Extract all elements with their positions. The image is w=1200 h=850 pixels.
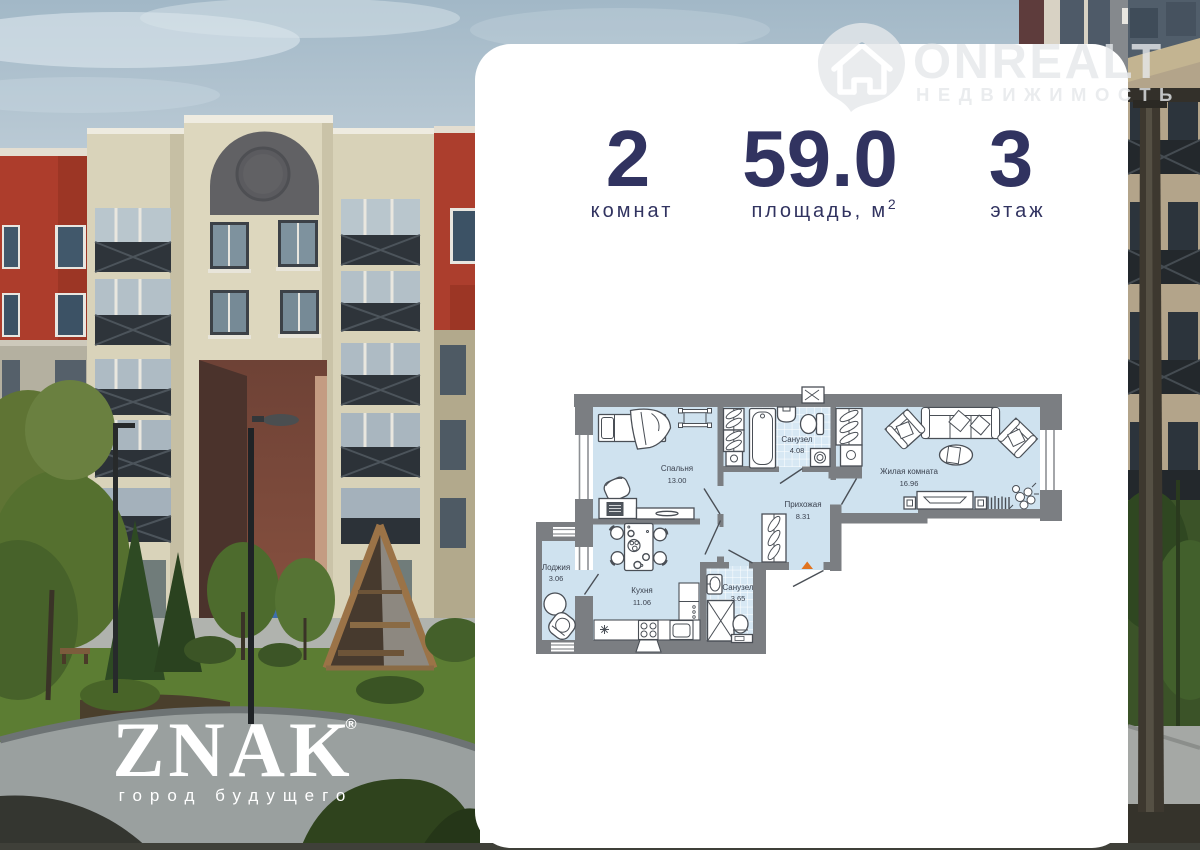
svg-text:Прихожая: Прихожая: [784, 500, 821, 509]
svg-text:город будущего: город будущего: [119, 786, 354, 805]
svg-text:®: ®: [345, 716, 356, 733]
svg-text:3.65: 3.65: [731, 594, 746, 603]
svg-text:площадь, м2: площадь, м2: [752, 196, 899, 222]
svg-text:Спальня: Спальня: [661, 464, 693, 473]
svg-text:59.0: 59.0: [742, 114, 898, 203]
svg-text:Санузел: Санузел: [722, 583, 753, 592]
svg-text:ZNAK: ZNAK: [112, 706, 353, 793]
svg-text:этаж: этаж: [990, 200, 1045, 222]
svg-text:13.00: 13.00: [668, 476, 687, 485]
svg-text:11.06: 11.06: [633, 598, 651, 607]
svg-text:2: 2: [606, 114, 651, 203]
svg-text:16.96: 16.96: [900, 479, 919, 488]
svg-text:4.08: 4.08: [790, 446, 805, 455]
svg-text:8.31: 8.31: [796, 512, 811, 521]
svg-text:комнат: комнат: [591, 200, 674, 222]
svg-text:Кухня: Кухня: [631, 586, 652, 595]
svg-text:Лоджия: Лоджия: [542, 563, 570, 572]
svg-text:3.06: 3.06: [549, 574, 564, 583]
svg-text:НЕДВИЖИМОСТЬ: НЕДВИЖИМОСТЬ: [916, 84, 1181, 105]
svg-text:Жилая комната: Жилая комната: [880, 467, 938, 476]
svg-text:Санузел: Санузел: [781, 435, 812, 444]
svg-text:3: 3: [989, 114, 1034, 203]
svg-text:ONREALT: ONREALT: [913, 35, 1164, 89]
